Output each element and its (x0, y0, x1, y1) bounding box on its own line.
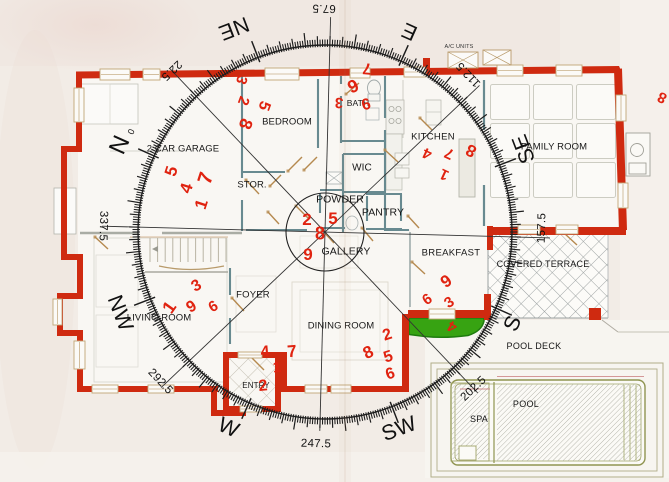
svg-text:FOYER: FOYER (236, 289, 270, 300)
svg-text:9: 9 (303, 245, 312, 264)
svg-text:POOL DECK: POOL DECK (507, 341, 562, 351)
svg-text:KITCHEN: KITCHEN (411, 131, 455, 142)
svg-text:337.5: 337.5 (97, 211, 110, 242)
svg-text:WIC: WIC (352, 163, 372, 174)
svg-text:5: 5 (328, 209, 337, 228)
svg-text:2 CAR GARAGE: 2 CAR GARAGE (147, 143, 219, 154)
svg-text:67.5: 67.5 (312, 2, 336, 15)
svg-text:2: 2 (258, 377, 268, 395)
svg-text:157.5: 157.5 (536, 213, 549, 244)
svg-text:PANTRY: PANTRY (362, 207, 404, 219)
svg-text:4: 4 (260, 343, 270, 361)
svg-text:247.5: 247.5 (301, 438, 332, 451)
svg-text:7: 7 (286, 342, 297, 362)
svg-text:7: 7 (362, 59, 372, 77)
svg-text:1: 1 (272, 359, 282, 377)
svg-text:8: 8 (315, 223, 325, 243)
svg-text:COVERED TERRACE: COVERED TERRACE (497, 259, 590, 269)
svg-text:2: 2 (302, 210, 311, 229)
svg-text:POOL: POOL (513, 399, 539, 409)
svg-text:BREAKFAST: BREAKFAST (422, 247, 481, 258)
svg-text:A/C UNITS: A/C UNITS (445, 44, 474, 50)
svg-text:BEDROOM: BEDROOM (262, 116, 312, 127)
svg-text:STOR.: STOR. (237, 179, 266, 190)
svg-text:SPA: SPA (470, 414, 488, 424)
